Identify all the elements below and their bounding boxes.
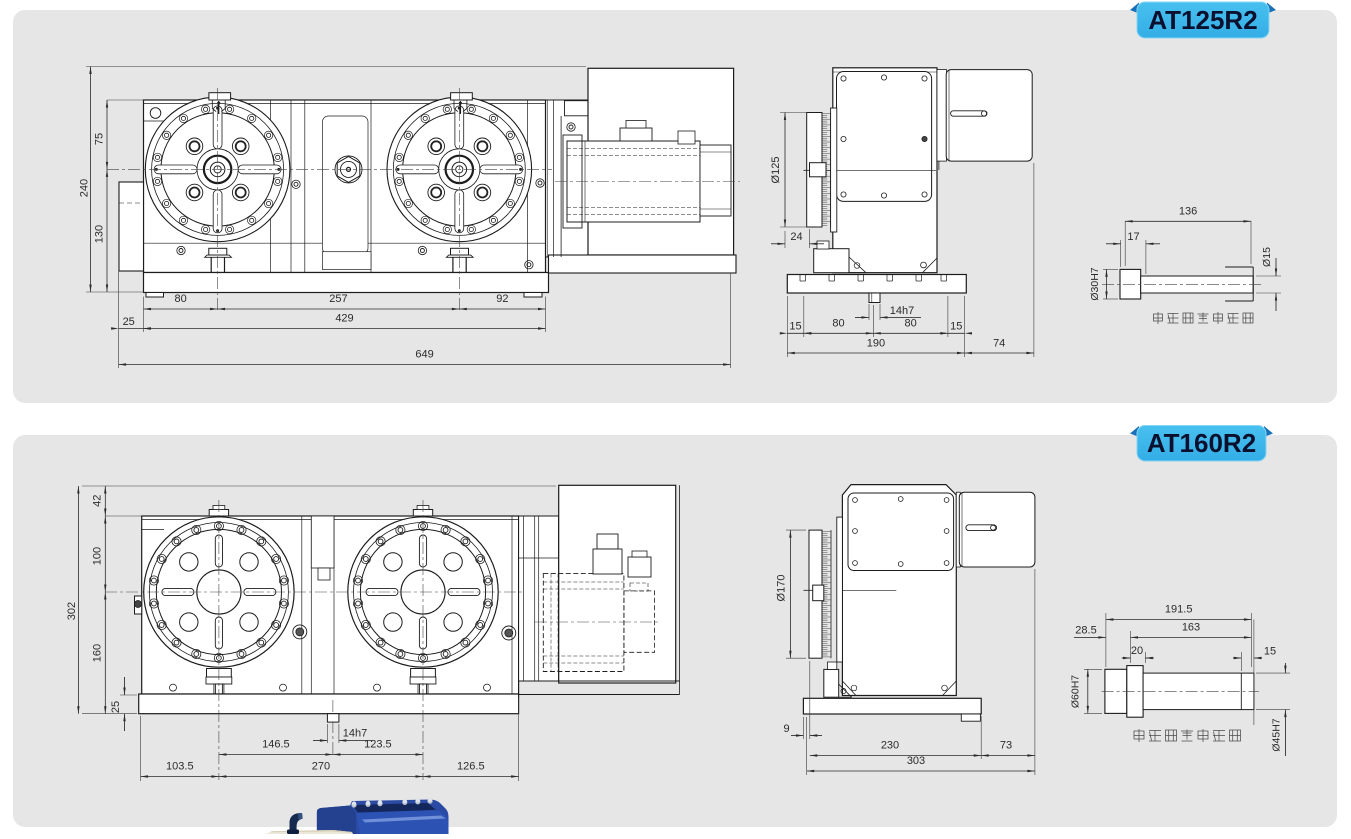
svg-text:25: 25: [110, 701, 122, 713]
svg-text:20: 20: [1131, 645, 1143, 657]
svg-text:130: 130: [94, 225, 106, 243]
svg-text:649: 649: [415, 349, 433, 361]
svg-text:160: 160: [92, 644, 104, 662]
svg-text:Ø45H7: Ø45H7: [1271, 718, 1283, 751]
svg-text:302: 302: [66, 602, 78, 620]
svg-text:15: 15: [950, 321, 962, 333]
svg-text:Ø170: Ø170: [775, 575, 787, 602]
svg-text:191.5: 191.5: [1165, 604, 1193, 616]
svg-text:AT125R2: AT125R2: [1148, 5, 1257, 35]
svg-text:25: 25: [123, 316, 135, 328]
svg-text:100: 100: [92, 547, 104, 565]
svg-text:190: 190: [867, 338, 885, 350]
svg-text:136: 136: [1179, 206, 1197, 218]
svg-text:Ø60H7: Ø60H7: [1070, 675, 1082, 708]
svg-text:92: 92: [496, 293, 508, 305]
svg-text:15: 15: [1264, 646, 1276, 658]
svg-text:Ø15: Ø15: [1261, 247, 1273, 267]
svg-text:103.5: 103.5: [166, 761, 194, 773]
svg-text:240: 240: [79, 179, 91, 197]
svg-text:24: 24: [790, 231, 802, 243]
svg-text:230: 230: [881, 740, 899, 752]
svg-text:AT160R2: AT160R2: [1147, 428, 1256, 458]
svg-text:14h7: 14h7: [890, 305, 914, 317]
svg-text:74: 74: [993, 338, 1005, 350]
svg-text:146.5: 146.5: [262, 739, 290, 751]
svg-text:42: 42: [92, 495, 104, 507]
svg-text:73: 73: [1000, 740, 1012, 752]
svg-text:80: 80: [174, 293, 186, 305]
svg-text:Ø30H7: Ø30H7: [1089, 267, 1101, 300]
svg-text:75: 75: [94, 133, 106, 145]
svg-text:17: 17: [1127, 231, 1139, 243]
svg-text:80: 80: [904, 318, 916, 330]
svg-text:163: 163: [1182, 622, 1200, 634]
svg-text:257: 257: [329, 293, 347, 305]
svg-text:9: 9: [783, 723, 789, 735]
svg-text:15: 15: [789, 321, 801, 333]
svg-text:270: 270: [312, 761, 330, 773]
svg-text:Ø125: Ø125: [770, 157, 782, 184]
svg-text:80: 80: [832, 318, 844, 330]
svg-text:123.5: 123.5: [364, 739, 392, 751]
svg-text:126.5: 126.5: [457, 761, 485, 773]
svg-text:28.5: 28.5: [1075, 625, 1096, 637]
svg-text:303: 303: [907, 755, 925, 767]
svg-text:429: 429: [335, 313, 353, 325]
